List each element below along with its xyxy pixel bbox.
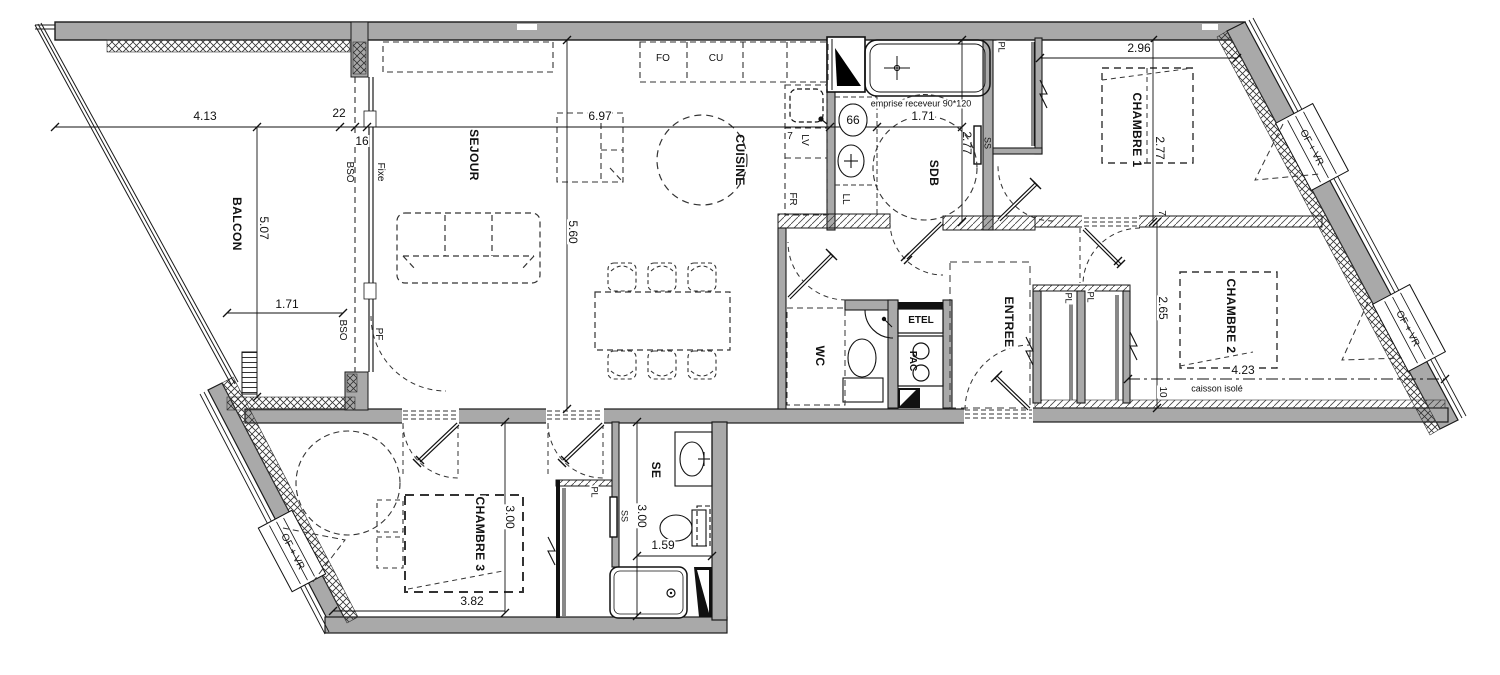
label-cuisiniere: CU: [708, 54, 724, 64]
dim-caisson-10: 10: [1157, 385, 1167, 398]
dim-balcon-len: 1.71: [274, 298, 299, 310]
label-room-se: SE: [650, 461, 662, 480]
label-seche-serviettes-sdb: SS: [983, 136, 992, 150]
caisson-hatch: [1035, 400, 1445, 408]
dim-kitchen-7: 7: [786, 132, 794, 142]
label-placard-ch1: PL: [997, 40, 1006, 53]
dim-gap-22: 22: [331, 107, 346, 119]
label-etel: ETEL: [907, 316, 935, 326]
dim-sejour-width: 6.97: [587, 110, 612, 122]
sofa: [397, 213, 540, 283]
insulation-hatch: [107, 31, 1440, 623]
se-shaft: [694, 567, 712, 617]
dim-se-depth: 3.00: [636, 503, 648, 528]
door-gaps: [402, 215, 1139, 424]
label-bso-top: BSO: [344, 160, 354, 183]
kitchen-sink: [790, 89, 827, 124]
label-room-chambre2: CHAMBRE 2: [1225, 278, 1237, 355]
balcony-planter: [242, 352, 257, 394]
dim-se-width: 1.59: [650, 539, 675, 551]
label-placard-ch2-left: PL: [1064, 291, 1073, 304]
dim-ch1-depth: 2.77: [1154, 135, 1166, 160]
ch3-clearance-circle: [296, 431, 400, 535]
label-porte-fenetre: PF: [373, 327, 383, 342]
bed-chambre1: [1102, 68, 1193, 163]
se-fixtures: [660, 432, 712, 546]
label-pac: PAC: [907, 350, 917, 372]
note-emprise-receveur: emprise receveur 90*120: [870, 100, 973, 109]
wc-fixtures: [843, 310, 893, 402]
sideboard: [383, 42, 553, 72]
dim-balcon-width: 4.13: [192, 110, 217, 122]
balcony-parapet: [35, 23, 238, 386]
dim-vasque-66: 66: [845, 114, 860, 126]
dim-wall-7: 7: [1156, 209, 1166, 217]
entree-zone: [950, 262, 1030, 408]
interior-walls: [612, 38, 1130, 567]
dim-ch2-width: 4.23: [1230, 364, 1255, 376]
label-room-chambre1: CHAMBRE 1: [1131, 92, 1143, 169]
dining-table: [595, 292, 730, 350]
label-room-wc: WC: [814, 345, 826, 368]
dim-gap-16: 16: [354, 135, 369, 147]
note-caisson-isole: caisson isolé: [1190, 385, 1244, 394]
dining-chairs: [608, 263, 716, 379]
label-room-cuisine: CUISINE: [734, 133, 746, 186]
label-bso-bottom: BSO: [337, 318, 347, 341]
dim-sejour-depth: 5.60: [567, 219, 579, 244]
label-room-sdb: SDB: [928, 159, 940, 188]
label-room-sejour: SEJOUR: [468, 128, 480, 182]
label-lave-linge: LL: [840, 192, 850, 205]
shower-tray: [610, 567, 687, 618]
dim-ch3-depth: 3.00: [504, 504, 516, 529]
bed-chambre3: [377, 495, 523, 592]
dim-ch3-width: 3.82: [459, 595, 484, 607]
plan-linework: [0, 0, 1500, 675]
label-fixe: Fixe: [375, 162, 385, 183]
dim-balcon-depth: 5.07: [258, 215, 270, 240]
label-four: FO: [655, 54, 671, 64]
label-seche-serviettes-se: SS: [620, 509, 629, 523]
label-placard-ch2-right: PL: [1086, 290, 1095, 303]
sdb-corner-unit: [827, 37, 865, 92]
label-frigo: FR: [787, 191, 797, 206]
dim-ch2-depth: 2.65: [1157, 295, 1169, 320]
dim-ch1-width: 2.96: [1126, 42, 1151, 54]
label-room-balcon: BALCON: [231, 196, 243, 252]
label-placard-ch3: PL: [590, 485, 599, 498]
label-room-chambre3: CHAMBRE 3: [474, 496, 486, 573]
label-lave-vaisselle: LV: [799, 133, 809, 147]
bathtub: [865, 40, 990, 96]
dim-sdb-width: 1.71: [910, 110, 935, 122]
label-room-entree: ENTREE: [1003, 295, 1015, 348]
floor-plan: BALCON SEJOUR CUISINE SDB CHAMBRE 1 CHAM…: [0, 0, 1500, 675]
dim-sdb-depth: 2.77: [961, 130, 973, 155]
